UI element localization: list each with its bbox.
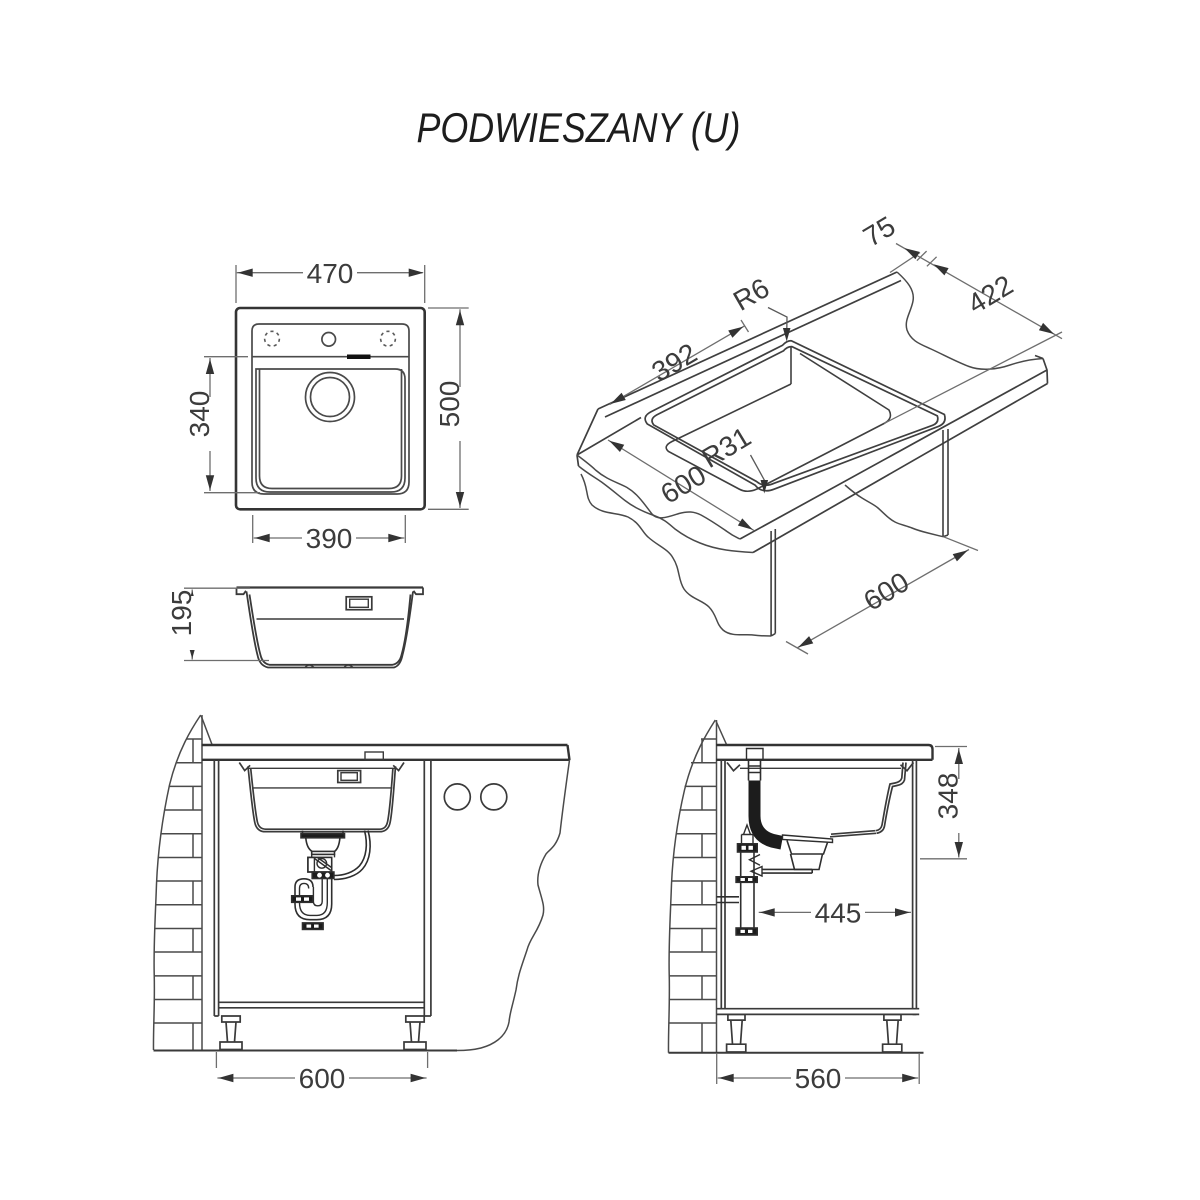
svg-text:600: 600 bbox=[655, 459, 711, 510]
svg-text:392: 392 bbox=[646, 337, 702, 387]
svg-text:600: 600 bbox=[858, 566, 914, 617]
svg-text:422: 422 bbox=[962, 269, 1018, 320]
svg-text:348: 348 bbox=[933, 773, 964, 820]
svg-text:195: 195 bbox=[166, 590, 197, 637]
svg-text:470: 470 bbox=[307, 258, 354, 289]
svg-text:500: 500 bbox=[434, 381, 465, 428]
svg-text:560: 560 bbox=[795, 1063, 842, 1094]
svg-text:R31: R31 bbox=[696, 421, 756, 474]
svg-text:PODWIESZANY (U): PODWIESZANY (U) bbox=[417, 104, 741, 151]
svg-text:390: 390 bbox=[306, 523, 353, 554]
svg-text:600: 600 bbox=[299, 1063, 346, 1094]
svg-text:340: 340 bbox=[184, 391, 215, 438]
svg-text:R6: R6 bbox=[728, 272, 775, 317]
svg-text:75: 75 bbox=[858, 210, 901, 253]
svg-text:445: 445 bbox=[815, 898, 862, 929]
